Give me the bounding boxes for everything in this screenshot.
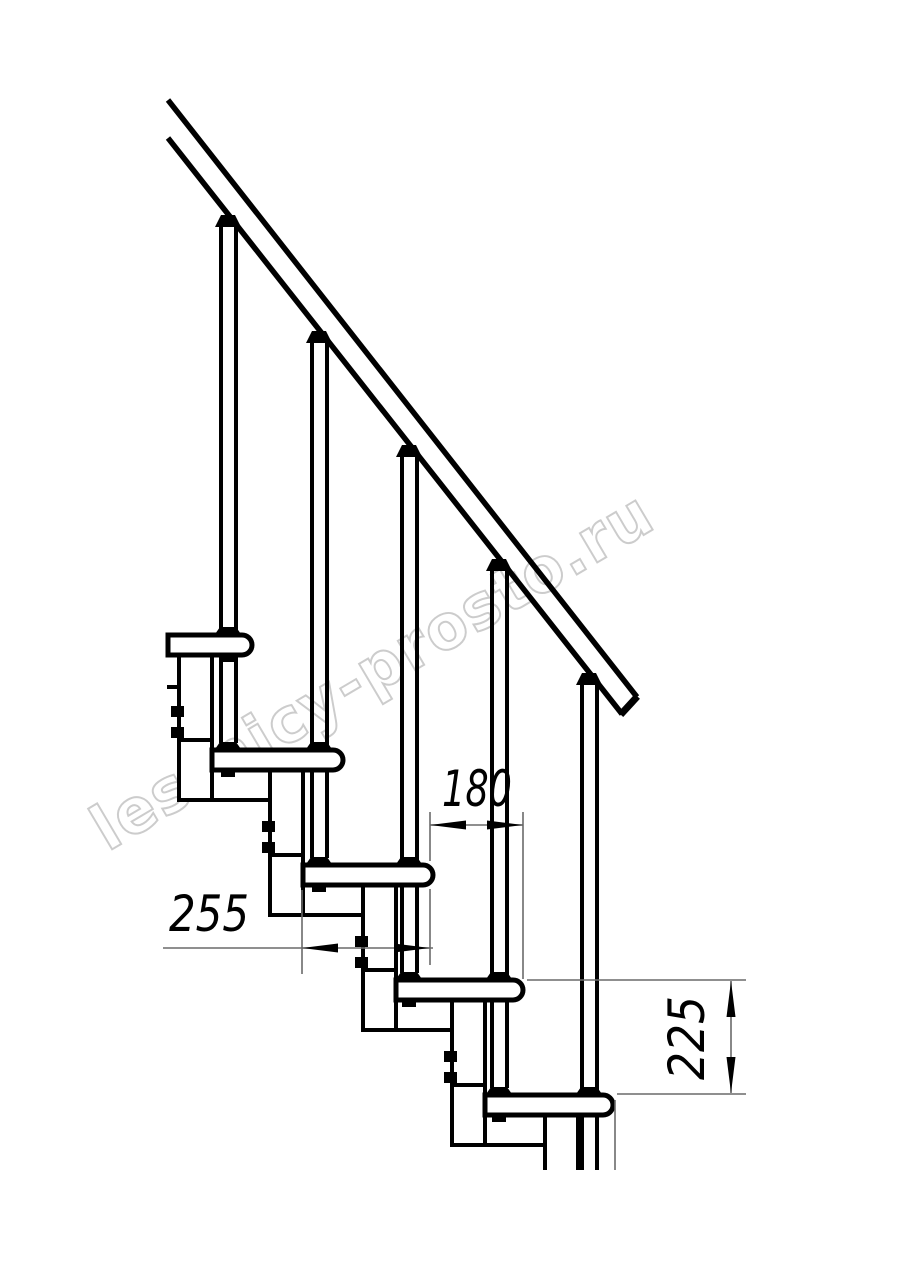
tread-2 — [212, 750, 343, 770]
rod-4-foot — [484, 1087, 514, 1097]
column-4-bolt-lower — [444, 1072, 457, 1083]
tread-3-under-nut — [312, 884, 326, 892]
tread-1-under-nut — [221, 654, 235, 662]
tread-3-clamp — [394, 857, 424, 867]
column-3-bolt-lower — [355, 957, 368, 968]
baluster-rod-1 — [215, 215, 241, 743]
column-1-bolt-upper — [171, 706, 184, 717]
column-4-bolt-upper — [444, 1051, 457, 1062]
column-2-bolt-upper — [262, 821, 275, 832]
tread-5-clamp — [574, 1087, 604, 1097]
tread-4-clamp — [484, 972, 514, 982]
depth-dim-text: 255 — [169, 885, 249, 943]
rise-arrow-bottom — [727, 1057, 736, 1093]
handrail-end-cap — [623, 699, 635, 712]
tread-4-under-nut — [402, 999, 416, 1007]
tread-1-clamp — [213, 627, 243, 637]
going-arrow-left — [430, 821, 466, 830]
tread-2-under-nut — [221, 769, 235, 777]
dimension-rise: 225 — [527, 980, 746, 1170]
dimension-going: 180 — [430, 760, 523, 979]
rod-2-foot — [304, 857, 334, 867]
baluster-rod-2 — [306, 331, 332, 858]
rod-3-foot — [394, 972, 424, 982]
depth-arrow-right — [394, 944, 430, 953]
rise-dim-text: 225 — [658, 996, 716, 1080]
depth-arrow-left — [302, 944, 338, 953]
going-dim-text: 180 — [442, 760, 512, 818]
staircase-drawing: lestnicy-prosto.ru — [0, 0, 914, 1280]
column-2-bolt-lower — [262, 842, 275, 853]
baluster-rod-3 — [396, 445, 422, 973]
column-3-bolt-upper — [355, 936, 368, 947]
tread-1 — [168, 635, 252, 655]
watermark-text: lestnicy-prosto.ru — [78, 476, 666, 865]
tread-3 — [303, 865, 433, 885]
tread-4 — [396, 980, 523, 1000]
rise-arrow-top — [727, 981, 736, 1017]
column-1-bolt-lower — [171, 727, 184, 738]
drawing-page: lestnicy-prosto.ru — [0, 0, 914, 1280]
tread-5 — [485, 1095, 613, 1115]
tread-5-under-nut — [492, 1114, 506, 1122]
